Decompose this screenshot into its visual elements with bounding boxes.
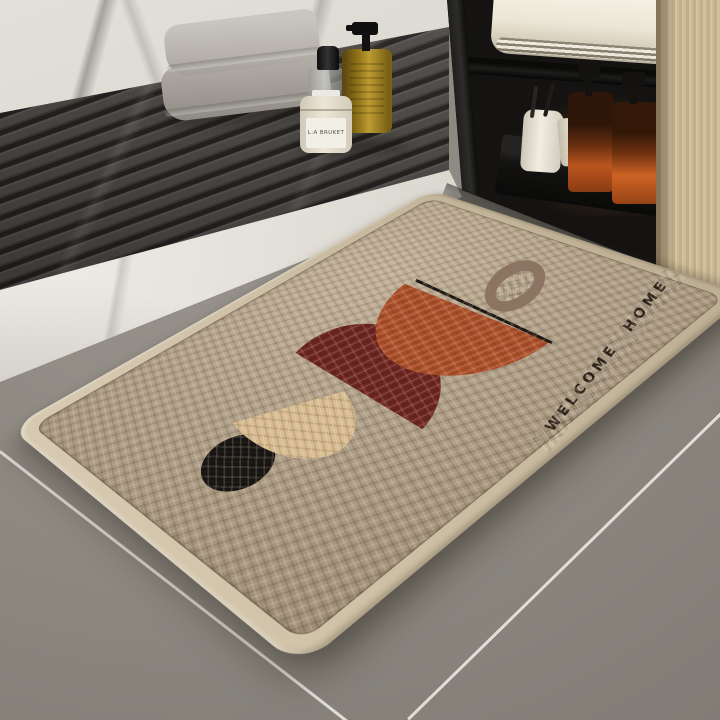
pump-head bbox=[622, 72, 646, 86]
glass-bottle-cap bbox=[317, 46, 339, 70]
pump-stem bbox=[630, 84, 637, 104]
pump-head bbox=[578, 64, 600, 78]
amber-pump-bottle bbox=[568, 92, 614, 192]
amber-pump-bottle bbox=[612, 102, 660, 204]
pump-stem bbox=[585, 76, 592, 96]
toothbrush-cup bbox=[520, 109, 564, 174]
welcome-home-text: WELCOME HOME bbox=[530, 261, 690, 454]
wood-side-panel bbox=[656, 0, 720, 300]
cream-jar-label: L:A BRUKET bbox=[306, 118, 346, 148]
bathroom-scene: L:A BRUKET WELCOME HOME bbox=[0, 0, 720, 720]
soap-dispenser-stem bbox=[362, 34, 370, 51]
